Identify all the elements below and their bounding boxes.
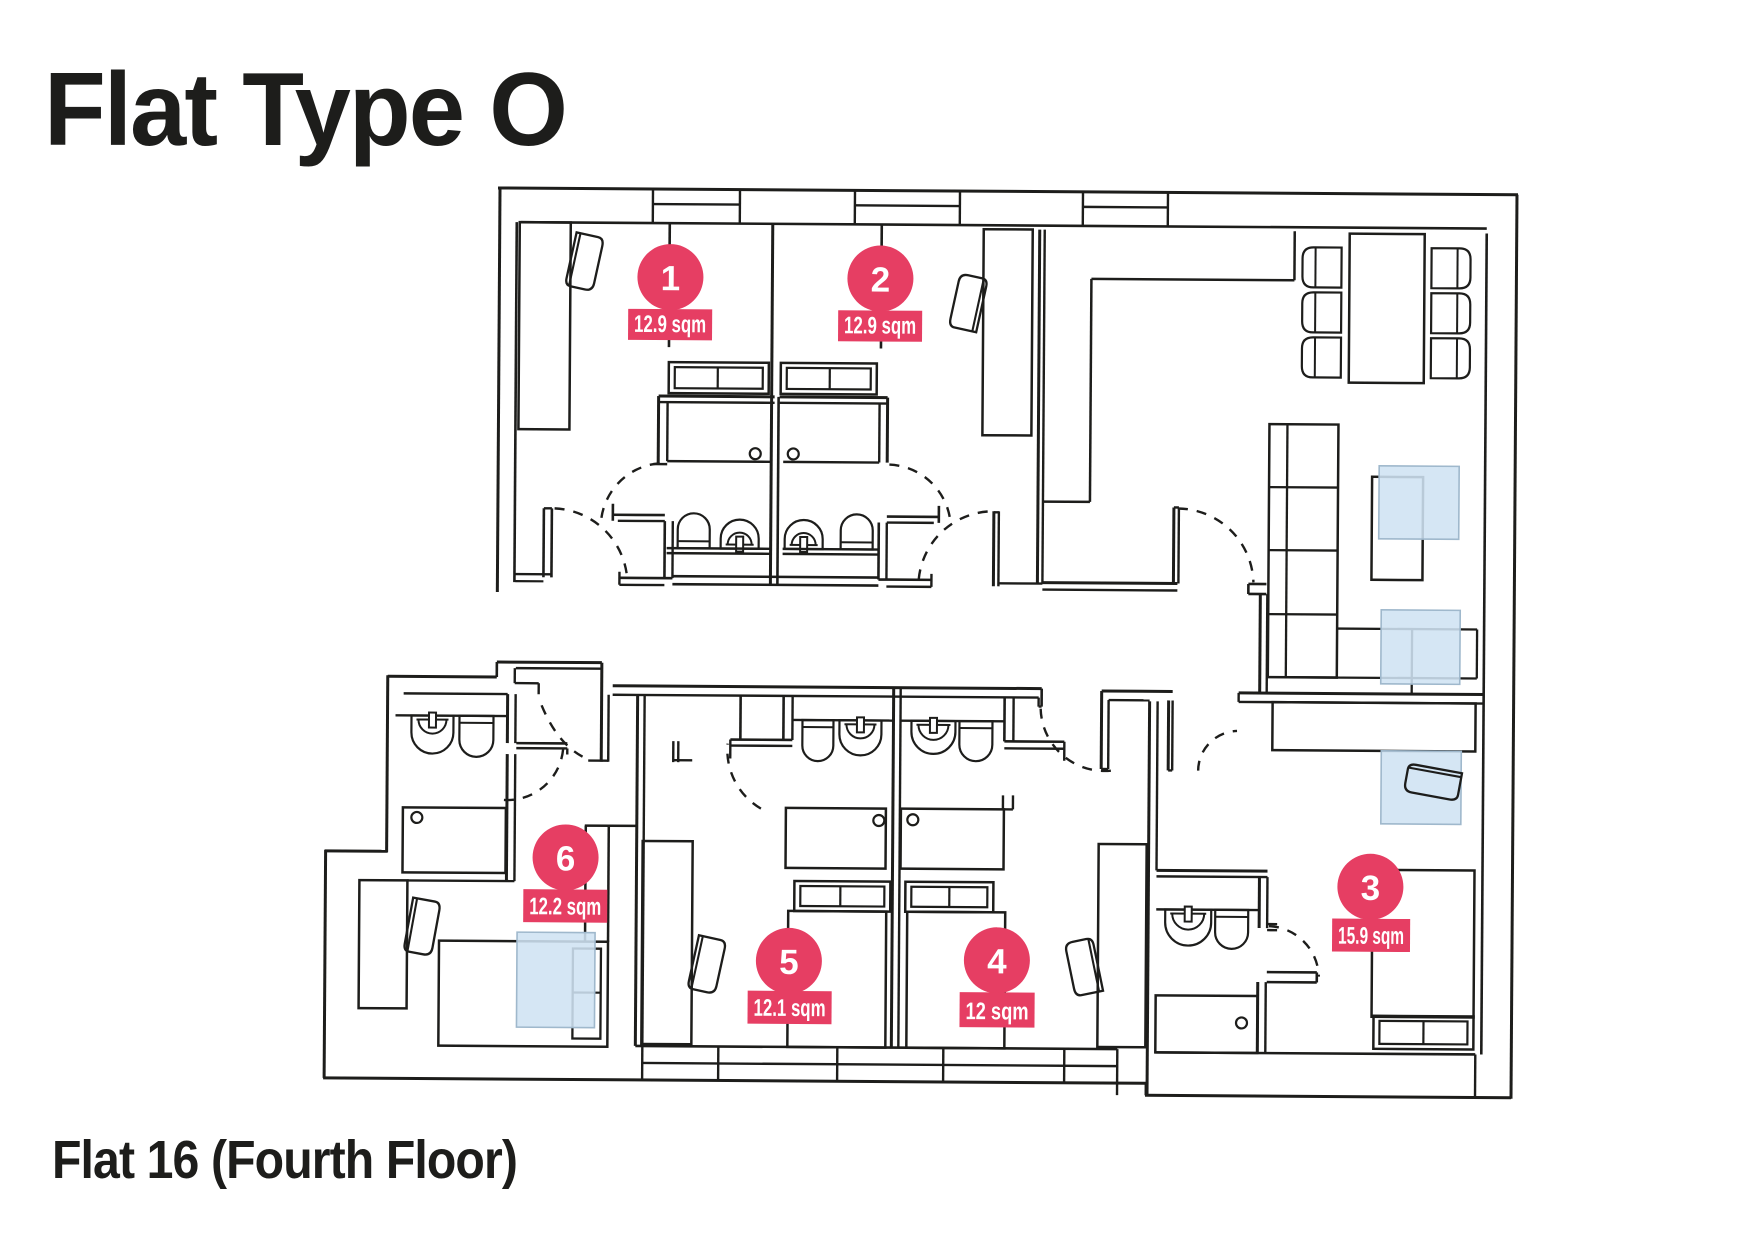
svg-text:4: 4 <box>987 942 1007 981</box>
svg-text:12.1 sqm: 12.1 sqm <box>753 995 825 1022</box>
svg-text:12 sqm: 12 sqm <box>965 998 1028 1025</box>
svg-text:5: 5 <box>779 943 799 982</box>
svg-text:12.2 sqm: 12.2 sqm <box>529 893 601 920</box>
svg-text:2: 2 <box>871 260 891 299</box>
svg-text:15.9 sqm: 15.9 sqm <box>1338 923 1404 950</box>
svg-text:12.9 sqm: 12.9 sqm <box>844 312 916 339</box>
svg-text:Flat Type O: Flat Type O <box>44 52 566 168</box>
svg-text:6: 6 <box>556 839 576 878</box>
svg-text:1: 1 <box>661 259 681 298</box>
svg-text:3: 3 <box>1361 869 1381 908</box>
svg-text:12.9 sqm: 12.9 sqm <box>634 311 706 338</box>
svg-text:Flat 16 (Fourth Floor): Flat 16 (Fourth Floor) <box>52 1130 517 1190</box>
